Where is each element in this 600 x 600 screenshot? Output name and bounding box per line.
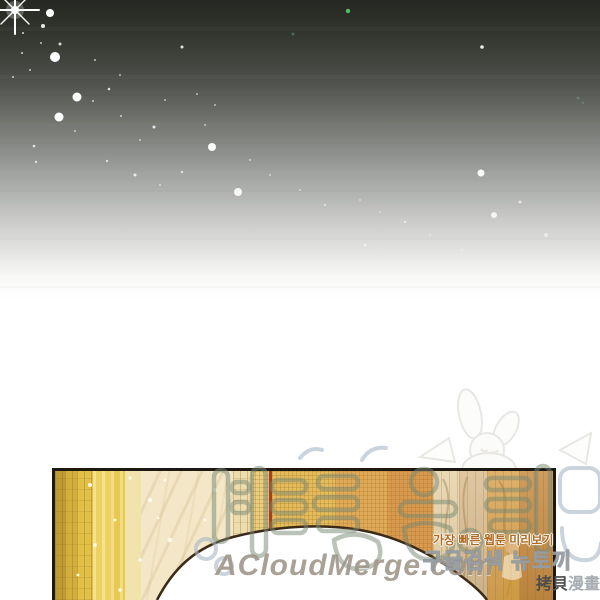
watermark-cjk-light: 漫畫 bbox=[568, 576, 600, 593]
watermark-cjk-stamp: 拷貝漫畫 bbox=[536, 570, 600, 594]
webtoon-page: ACloudMerge.com 가장 빠른 웹툰 미리보기 구글검색 뉴토끼 拷… bbox=[0, 0, 600, 600]
bubble-logo-watermark bbox=[0, 0, 600, 600]
watermark-cjk-dark: 拷貝 bbox=[536, 576, 568, 593]
